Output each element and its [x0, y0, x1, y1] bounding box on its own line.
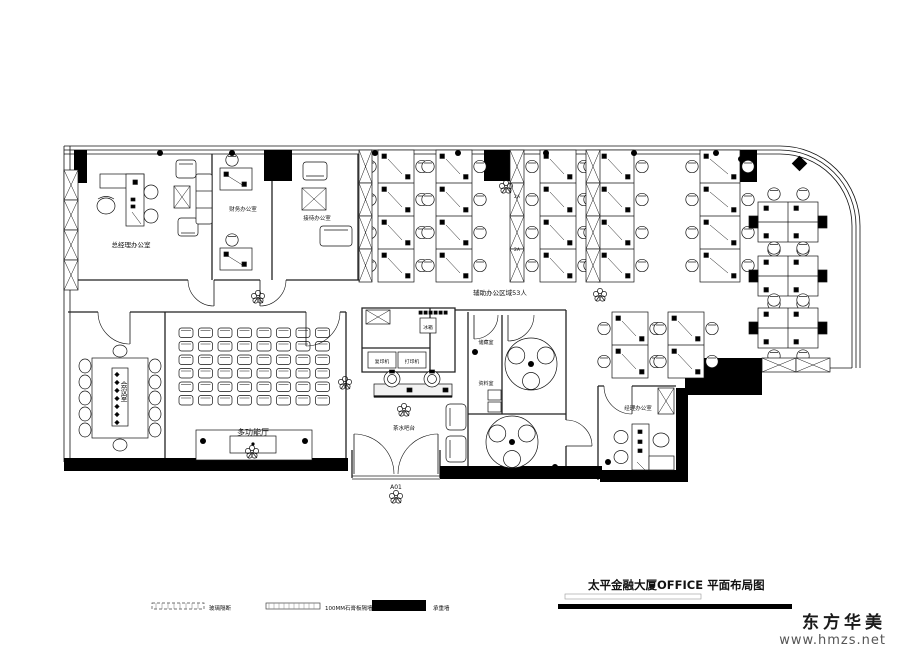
legend: 玻璃隔断 100MM石膏板隔墙 承重墙: [152, 600, 450, 612]
waiting-armchairs: [446, 404, 466, 462]
bottom-wall-center: [440, 466, 602, 479]
floorplan-page: 总经理办公室 财务办公室 接待办公室 辅助办公区域53人 会议室 多功能厅 复印…: [0, 0, 909, 647]
room-label-archive: 资料室: [478, 380, 493, 387]
watermark-brand: 东方华美: [802, 612, 886, 633]
label-printer: 打印机: [405, 358, 420, 365]
drawing-title: 太平金融大厦OFFICE 平面布局图: [587, 578, 765, 592]
plant-icon: [397, 403, 410, 416]
reception-office-furniture: [302, 162, 352, 246]
room-label-finance-office: 财务办公室: [229, 205, 257, 213]
title-rule: [558, 604, 792, 609]
entrance-jambs: [352, 450, 440, 478]
right-room-wall: [676, 388, 688, 482]
workstation-bank: [422, 150, 486, 282]
entrance-threshold: [352, 476, 440, 479]
label-copier: 复印机: [375, 358, 390, 365]
workstation-bank: [364, 150, 428, 282]
room-label-gm-office: 总经理办公室: [112, 240, 152, 249]
furniture-layer: [64, 150, 830, 503]
room-label-meeting-room: 会议室: [120, 380, 128, 402]
workstation-pod: [749, 188, 827, 256]
legend-swatch-load-bearing: [372, 600, 426, 611]
manager-office-furniture: [614, 388, 674, 470]
label-fridge: 冰箱: [423, 324, 433, 331]
top-window-wall: [64, 146, 780, 154]
plant-icon: [251, 290, 264, 303]
workstation-pod: [749, 242, 827, 310]
round-table: [505, 338, 557, 390]
gm-office-furniture: [97, 160, 212, 236]
room-label-reception-office: 接待办公室: [303, 214, 331, 222]
plant-icon: [593, 288, 606, 301]
entrance-label: A01: [390, 484, 402, 491]
label-pantry: 茶水吧台: [393, 424, 416, 432]
round-table: [486, 416, 538, 468]
legend-label-gypsum-wall: 100MM石膏板隔墙: [325, 604, 373, 612]
room-label-storage: 储藏室: [478, 339, 493, 346]
column-marker-2: 2A: [514, 247, 521, 253]
open-area-note: 辅助办公区域53人: [473, 288, 527, 297]
workstation-bank: [686, 150, 754, 282]
room-label-manager-office: 经理办公室: [624, 404, 652, 412]
storage-room-furniture: [488, 390, 501, 412]
legend-label-load-bearing: 承重墙: [433, 604, 450, 612]
workstation-pod: [749, 294, 827, 362]
multi-hall-furniture: [179, 328, 330, 460]
room-label-multi-hall: 多功能厅: [237, 427, 269, 437]
floorplan-canvas: 总经理办公室 财务办公室 接待办公室 辅助办公区域53人 会议室 多功能厅 复印…: [0, 0, 909, 647]
shaft-top-b: [484, 150, 512, 181]
column-marker-1: 2A: [514, 194, 521, 200]
bottom-wall-right: [600, 470, 680, 482]
plant-icon: [389, 490, 402, 503]
watermark-site: www.hmzs.net: [779, 633, 886, 647]
workstation-bank: [598, 312, 662, 378]
shaft-top-a: [264, 150, 292, 181]
right-window-wall: [852, 226, 860, 368]
plant-icon: [338, 376, 351, 389]
title-underline-box: [565, 594, 701, 599]
legend-swatch-glass-partition: [152, 603, 204, 609]
workstation-bank: [526, 150, 590, 282]
title-block: 玻璃隔断 100MM石膏板隔墙 承重墙 太平金融大厦OFFICE 平面布局图 东…: [152, 578, 886, 647]
legend-label-glass-partition: 玻璃隔断: [209, 604, 232, 612]
